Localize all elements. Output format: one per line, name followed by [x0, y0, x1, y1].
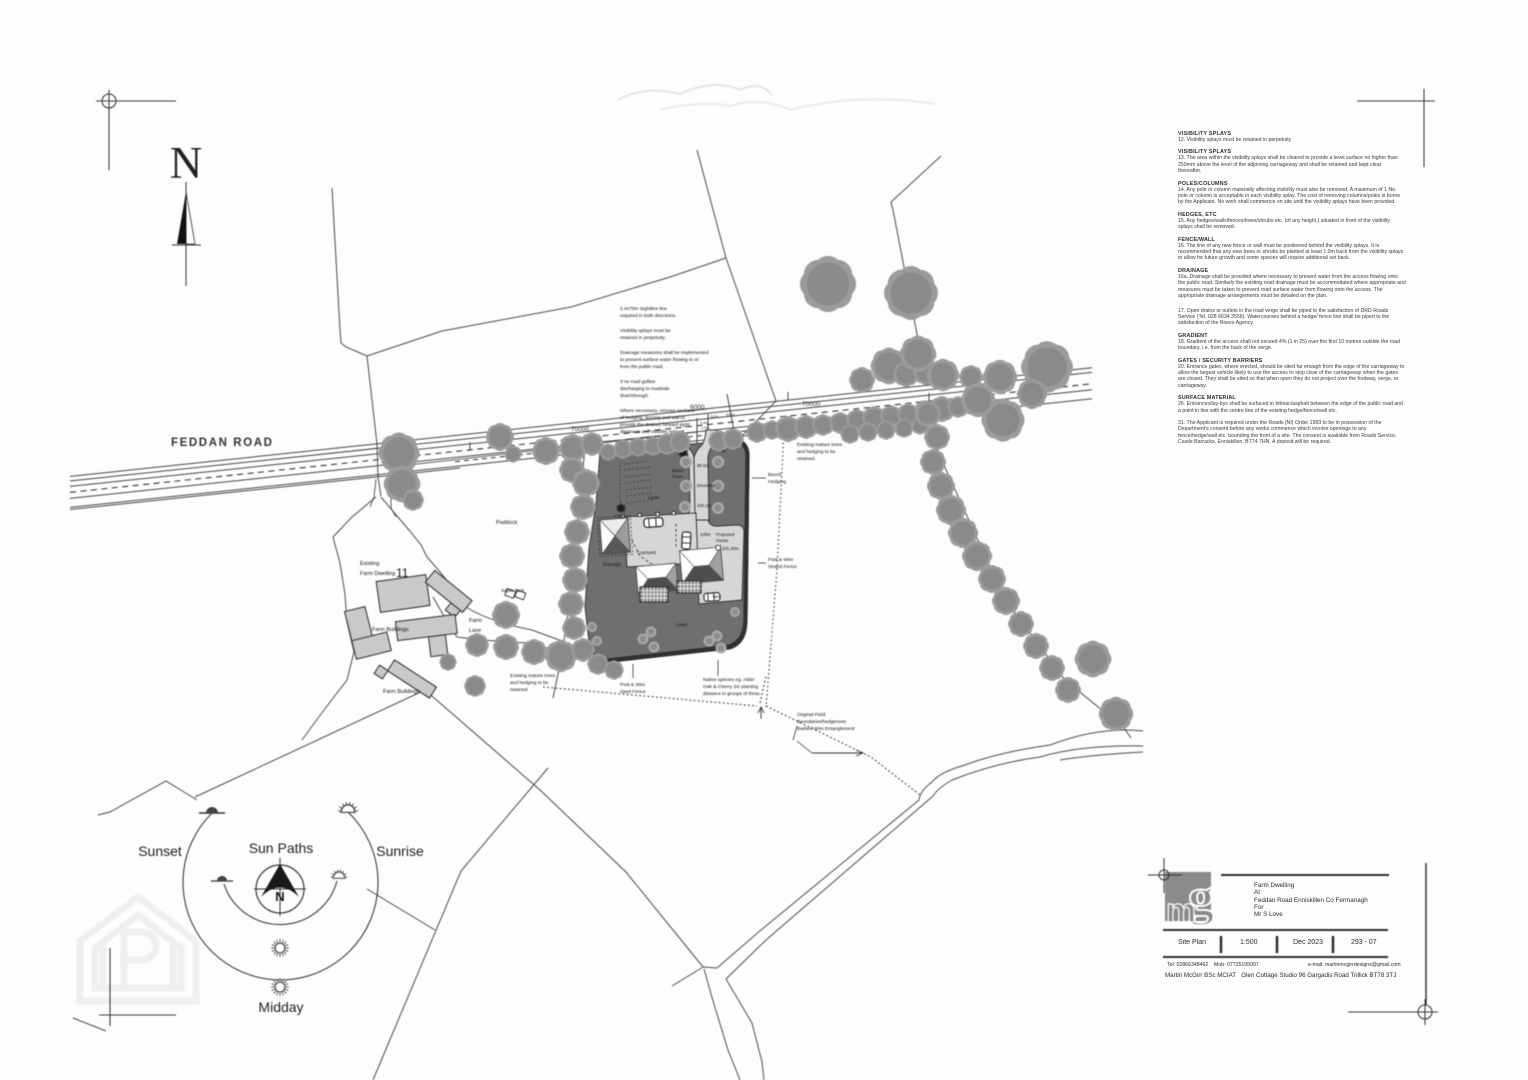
svg-text:Farm Buildings: Farm Buildings: [372, 627, 409, 633]
svg-text:Post & Wire: Post & Wire: [620, 682, 646, 688]
svg-text:Septic Tank: Septic Tank: [501, 588, 525, 593]
svg-text:Trees: Trees: [672, 474, 683, 479]
svg-text:Strand Fence: Strand Fence: [768, 564, 797, 570]
svg-text:105m: 105m: [700, 532, 711, 537]
svg-text:3 no road gullies: 3 no road gullies: [620, 379, 656, 385]
svg-text:Sunrise: Sunrise: [376, 843, 424, 859]
svg-text:to prevent surface water flowi: to prevent surface water flowing to or: [620, 357, 699, 363]
svg-text:Sunset: Sunset: [138, 843, 182, 859]
svg-text:Native species eg. Alder: Native species eg. Alder: [703, 677, 755, 683]
svg-text:Lane: Lane: [469, 628, 481, 634]
svg-text:Paddock: Paddock: [496, 520, 518, 526]
svg-text:Beech: Beech: [672, 468, 685, 473]
svg-text:N: N: [275, 889, 284, 904]
svg-text:100.2m: 100.2m: [697, 503, 712, 508]
svg-text:Existing: Existing: [360, 561, 379, 567]
svg-text:Proposed: Proposed: [716, 532, 735, 537]
svg-text:retained.: retained.: [510, 687, 529, 693]
svg-text:Farm: Farm: [469, 618, 482, 624]
svg-text:provide the desired forward si: provide the desired forward sight: [620, 422, 690, 428]
svg-text:Boundaries/hedgerows: Boundaries/hedgerows: [797, 719, 847, 725]
svg-text:Visibility splays must be: Visibility splays must be: [620, 328, 671, 334]
svg-text:5000: 5000: [726, 413, 734, 417]
svg-text:discharging to roadside: discharging to roadside: [620, 386, 670, 392]
svg-text:required in both directions.: required in both directions.: [620, 313, 677, 319]
svg-text:Sun Paths: Sun Paths: [249, 840, 314, 856]
svg-text:2.4m: 2.4m: [700, 421, 708, 425]
svg-text:Where necessary, remove sectio: Where necessary, remove sections: [620, 408, 695, 414]
svg-text:Beech: Beech: [768, 472, 782, 478]
svg-text:from the public road.: from the public road.: [620, 364, 664, 370]
svg-text:70000: 70000: [802, 401, 820, 408]
svg-text:Lawn: Lawn: [676, 622, 688, 628]
svg-text:m: m: [1166, 892, 1196, 930]
svg-text:Yard: Yard: [712, 594, 721, 599]
svg-text:House: House: [716, 538, 729, 543]
svg-text:retained.: retained.: [797, 456, 816, 462]
svg-text:Midday: Midday: [258, 999, 303, 1015]
svg-text:Existing mature trees: Existing mature trees: [797, 442, 843, 448]
svg-text:11: 11: [396, 566, 409, 580]
svg-text:Existing mature trees: Existing mature trees: [510, 673, 556, 679]
svg-text:Oak & Cherry 2m planting: Oak & Cherry 2m planting: [703, 684, 759, 690]
svg-text:2.4x70m Sightline line: 2.4x70m Sightline line: [620, 306, 667, 312]
svg-text:Original Field: Original Field: [797, 712, 826, 718]
svg-text:Lawn: Lawn: [648, 495, 660, 501]
svg-text:1.0m: 1.0m: [701, 426, 709, 430]
svg-text:distance in groups of three.: distance in groups of three.: [703, 691, 761, 697]
svg-text:Driveway: Driveway: [697, 483, 716, 488]
svg-text:Farm Buildings: Farm Buildings: [383, 689, 420, 695]
svg-text:Post & Wire: Post & Wire: [768, 557, 794, 563]
svg-text:70000: 70000: [571, 426, 589, 433]
svg-text:drain/sheugh.: drain/sheugh.: [620, 393, 649, 399]
svg-text:retained in perpetuity.: retained in perpetuity.: [620, 335, 666, 341]
svg-text:Courtyard: Courtyard: [637, 550, 656, 555]
svg-text:Barbed Wire Entanglement: Barbed Wire Entanglement: [797, 726, 855, 732]
svg-text:and hedging to be: and hedging to be: [510, 680, 549, 686]
svg-text:Steel Fence: Steel Fence: [620, 689, 646, 695]
svg-text:99.5m: 99.5m: [697, 463, 709, 468]
svg-text:FEDDAN ROAD: FEDDAN ROAD: [171, 437, 274, 449]
svg-text:5000: 5000: [710, 415, 718, 419]
svg-text:Farm Dwelling: Farm Dwelling: [360, 571, 395, 577]
svg-text:of hedging, fencing and wall t: of hedging, fencing and wall to: [620, 415, 685, 421]
svg-text:Drainage measures shall be imp: Drainage measures shall be implemented: [620, 350, 709, 356]
svg-text:and hedging to be: and hedging to be: [797, 449, 836, 455]
svg-text:101.45m: 101.45m: [722, 546, 739, 551]
svg-text:Hedging: Hedging: [768, 479, 786, 485]
svg-text:Garage: Garage: [603, 562, 621, 568]
svg-text:N: N: [170, 138, 203, 188]
